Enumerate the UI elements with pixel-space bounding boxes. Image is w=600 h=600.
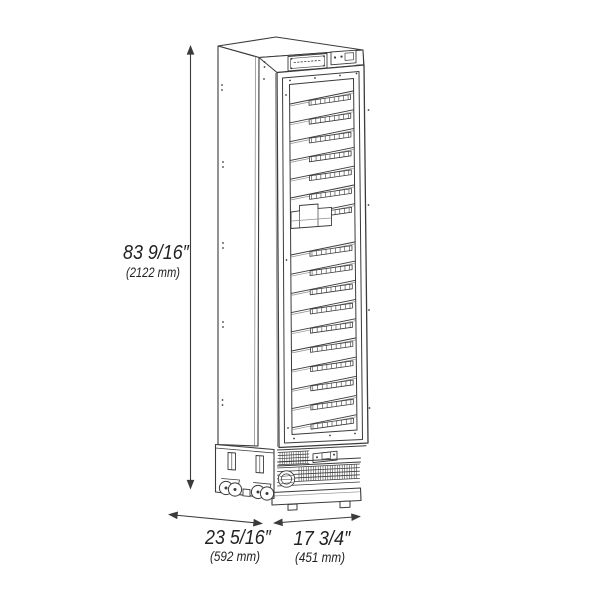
- screw-dot: [368, 204, 370, 206]
- screw-dot: [222, 321, 224, 323]
- front-right-foot: [340, 501, 350, 508]
- depth-imperial-label: 23 5/16″: [204, 527, 272, 549]
- screw-dot: [222, 404, 224, 406]
- width-dimension-arrow: [274, 517, 360, 524]
- depth-metric-label: (592 mm): [210, 549, 260, 564]
- width-metric-label: (451 mm): [295, 550, 345, 565]
- screw-dot: [222, 399, 224, 401]
- front-left-foot: [288, 504, 297, 510]
- wine-cooler-illustration: [216, 37, 371, 510]
- height-imperial-label: 83 9/16″: [123, 242, 190, 264]
- bottom-vent-section: [272, 446, 366, 511]
- screw-dot: [221, 84, 223, 86]
- width-dimension: 17 3/4″ (451 mm): [274, 517, 360, 566]
- screw-dot: [222, 247, 224, 249]
- wine-cooler-dimension-diagram: 83 9/16″ (2122 mm) 23 5/16″ (592 mm) 17 …: [0, 0, 600, 600]
- base-casters-left: [216, 445, 275, 501]
- width-imperial-label: 17 3/4″: [294, 528, 352, 550]
- height-metric-label: (2122 mm): [126, 265, 180, 280]
- screw-dot: [263, 78, 265, 80]
- height-dimension: 83 9/16″ (2122 mm): [123, 46, 191, 489]
- depth-dimension: 23 5/16″ (592 mm): [169, 515, 272, 565]
- screw-dot: [368, 109, 370, 111]
- dimension-diagram-canvas: 83 9/16″ (2122 mm) 23 5/16″ (592 mm) 17 …: [0, 0, 600, 600]
- screw-dot: [222, 242, 224, 244]
- screw-dot: [222, 326, 224, 328]
- screw-dot: [221, 89, 223, 91]
- screw-dot: [264, 61, 266, 63]
- depth-dimension-arrow: [169, 515, 262, 524]
- screw-dot: [368, 309, 370, 311]
- screw-dot: [264, 66, 266, 68]
- screw-dot: [222, 161, 224, 163]
- screw-dot: [222, 166, 224, 168]
- cabinet-side-panel: [218, 46, 259, 446]
- screw-dot: [369, 407, 371, 409]
